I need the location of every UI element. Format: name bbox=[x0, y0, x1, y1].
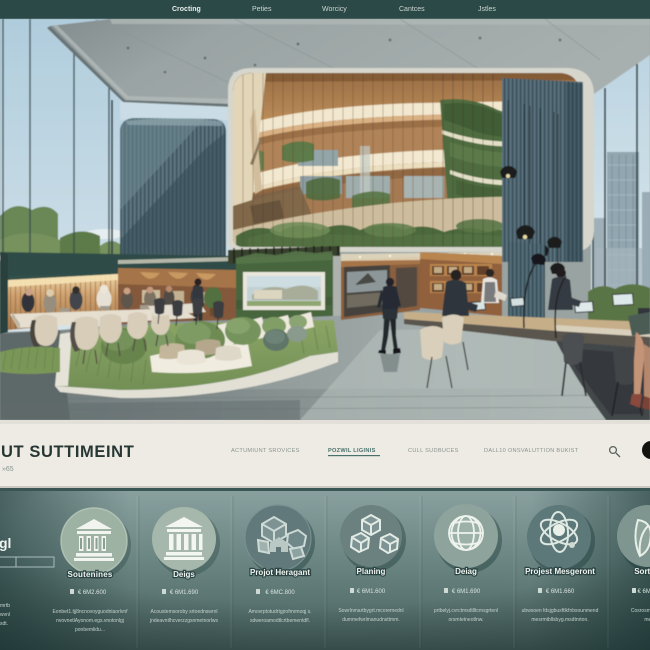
svg-text:gl: gl bbox=[0, 535, 11, 551]
svg-text:€ 6M1.690: € 6M1.690 bbox=[170, 590, 199, 596]
svg-text:Soutenines: Soutenines bbox=[67, 570, 112, 579]
svg-text:CULL SUDBUCES: CULL SUDBUCES bbox=[408, 448, 459, 454]
svg-text:Planing: Planing bbox=[357, 567, 386, 576]
svg-text:Sowrlnmartbygrt.mcoremednl: Sowrlnmartbygrt.mcoremednl bbox=[338, 608, 403, 614]
svg-text:DALL10 ONSVALUTTION BUKIST: DALL10 ONSVALUTTION BUKIST bbox=[484, 448, 579, 454]
svg-text:Crocting: Crocting bbox=[172, 6, 201, 13]
svg-text:Deiag: Deiag bbox=[455, 567, 477, 576]
svg-text:dummefwrlmanudnsttmm.: dummefwrlmanudnsttmm. bbox=[342, 617, 400, 623]
svg-text:ubwsoen fdsjgbusftlkfnbsounmen: ubwsoen fdsjgbusftlkfnbsounmend bbox=[522, 608, 599, 614]
svg-text:Eonbet1.tjj8ncnovoyguodnlaorlv: Eonbet1.tjj8ncnovoyguodnlaorlvnf bbox=[52, 609, 128, 615]
svg-text:€ 6M2.600: € 6M2.600 bbox=[78, 590, 107, 596]
svg-text:ponbemlidu...: ponbemlidu... bbox=[75, 627, 105, 633]
svg-text:mesrmtbllsbyg.msdtnrton.: mesrmtbllsbyg.msdtnrton. bbox=[531, 617, 588, 623]
svg-text:mrtb: mrtb bbox=[0, 603, 10, 609]
svg-text:€ 6M1.600: € 6M1.600 bbox=[357, 589, 386, 595]
svg-text:Sortlen: Sortlen bbox=[634, 567, 650, 576]
svg-text:mesrtn: mesrtn bbox=[644, 617, 650, 623]
svg-text:€ 6MC.800: € 6MC.800 bbox=[265, 590, 295, 596]
svg-text:»65: »65 bbox=[2, 466, 14, 473]
svg-text:€ 6M1.660: € 6M1.660 bbox=[546, 589, 575, 595]
svg-text:Deigs: Deigs bbox=[173, 570, 195, 579]
svg-text:nvovnetlAyonom.egs.vnotonlgj: nvovnetlAyonom.egs.vnotonlgj bbox=[56, 618, 124, 624]
svg-text:€ 6M1.60: € 6M1.60 bbox=[637, 589, 650, 595]
svg-text:Peties: Peties bbox=[252, 6, 272, 13]
svg-text:UT SUTTIMEINT: UT SUTTIMEINT bbox=[1, 443, 134, 461]
svg-text:jndeavntlhcverzzgsnmetnorlws: jndeavntlhcverzzgsnmetnorlws bbox=[149, 618, 219, 624]
svg-text:Jstles: Jstles bbox=[478, 6, 496, 13]
svg-text:Worcicy: Worcicy bbox=[322, 6, 347, 13]
svg-text:wvnl: wvnl bbox=[0, 612, 10, 618]
svg-text:€ 6M1.690: € 6M1.690 bbox=[452, 589, 481, 595]
svg-text:prtbelyj.cvrctmsdtlltcmsgrtenl: prtbelyj.cvrctmsdtlltcmsgrtenl bbox=[434, 608, 498, 614]
svg-text:sdt.: sdt. bbox=[0, 621, 8, 627]
svg-text:orsmtetneotlnw.: orsmtetneotlnw. bbox=[448, 617, 483, 623]
svg-text:Acoustemsoroby srtoednswrnl: Acoustemsoroby srtoednswrnl bbox=[151, 609, 218, 615]
svg-text:Cantces: Cantces bbox=[399, 6, 425, 13]
svg-text:POZWIL LIGINIS: POZWIL LIGINIS bbox=[328, 448, 376, 454]
svg-text:ACTUMIUNT SROVICES: ACTUMIUNT SROVICES bbox=[231, 448, 300, 454]
svg-text:Projot Heragant: Projot Heragant bbox=[250, 568, 310, 577]
svg-text:Amovrptotudrtgjrofmrmoqj s.: Amovrptotudrtgjrofmrmoqj s. bbox=[248, 609, 311, 615]
svg-text:Cosrosmnsmthrtbo: Cosrosmnsmthrtbo bbox=[631, 608, 650, 614]
svg-text:Projest Mesgeront: Projest Mesgeront bbox=[525, 567, 595, 576]
svg-text:sdweroamodtlcrtbementdfl.: sdweroamodtlcrtbementdfl. bbox=[250, 618, 310, 624]
